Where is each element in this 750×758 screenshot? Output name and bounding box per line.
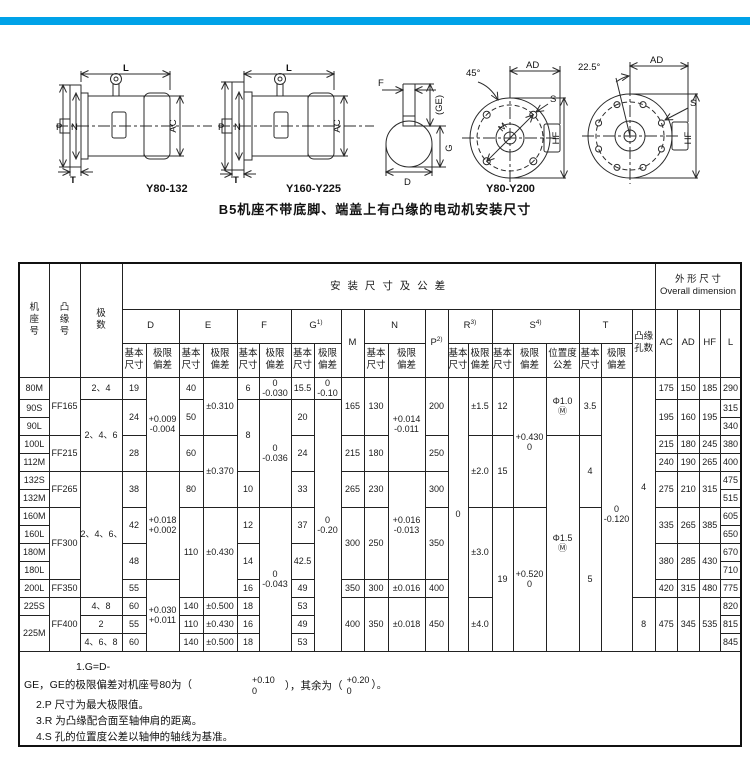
data-cell: 4 [579, 435, 601, 507]
dim-label-ad: AD [526, 60, 539, 71]
notes-cell: 1.G=D- GE，GE的极限偏差对机座号80为（+0.100），其余为（+0.… [19, 651, 741, 746]
data-cell: 53 [291, 597, 314, 615]
data-cell: 480 [699, 579, 720, 597]
data-cell: 49 [291, 579, 314, 597]
figure-y160-y225-side-view: L P N AC T [218, 62, 376, 189]
data-cell: 670 [720, 543, 741, 561]
data-cell: 215 [655, 435, 677, 453]
note-2-end: ）。 [371, 680, 387, 692]
b5-dimension-table: 机 座 号凸 缘 号极 数安 装 尺 寸 及 公 差外 形 尺 寸 Overal… [18, 262, 742, 747]
data-cell: 650 [720, 525, 741, 543]
data-cell: 315 [699, 471, 720, 507]
data-cell: 0 -0.036 [259, 399, 291, 507]
top-accent-bar [0, 17, 750, 25]
data-cell: 845 [720, 633, 741, 651]
data-cell: 430 [699, 543, 720, 579]
dim-label-f: F [378, 78, 384, 89]
figure-y80-132-side-view: L P N AC T [56, 62, 214, 189]
data-cell: 20 [291, 399, 314, 435]
data-cell: 140 [179, 597, 203, 615]
data-cell: 400 [341, 597, 364, 651]
header-cell: 极限 偏差 [388, 343, 425, 377]
data-cell: ±2.0 [468, 435, 492, 507]
header-cell: D [122, 309, 179, 343]
header-cell: 基本 尺寸 [364, 343, 388, 377]
data-cell: 300 [341, 507, 364, 579]
data-cell: ±0.430 [203, 615, 237, 633]
data-cell: 200L [19, 579, 49, 597]
tolerance-fraction-1: +0.100 [252, 675, 275, 696]
data-cell: Φ1.5 Ⓜ [546, 435, 579, 651]
data-cell: 515 [720, 489, 741, 507]
data-cell: +0.030 +0.011 [146, 579, 179, 651]
data-cell: 275 [655, 471, 677, 507]
header-cell: G1) [291, 309, 341, 343]
data-cell: 200 [425, 377, 448, 435]
header-cell: L [720, 309, 741, 377]
figure-shaft-section: F (GE) G D [374, 64, 460, 193]
data-cell: 60 [122, 633, 146, 651]
data-cell: 180L [19, 561, 49, 579]
data-cell: 340 [720, 417, 741, 435]
data-cell: 4 [632, 377, 655, 597]
data-cell: 42.5 [291, 543, 314, 579]
data-cell: 775 [720, 579, 741, 597]
data-cell: 28 [122, 435, 146, 471]
fraction-top: +0.20 [347, 675, 370, 685]
data-cell: +0.014 -0.011 [388, 377, 425, 471]
dim-label-n: N [234, 122, 241, 133]
data-cell: FF300 [49, 507, 80, 579]
data-cell: 265 [341, 471, 364, 507]
data-cell: 5 [579, 507, 601, 651]
data-cell: 165 [341, 377, 364, 435]
page: { "accent_color": "#00a2e8", "figures": … [0, 0, 750, 758]
data-cell: 110 [179, 615, 203, 633]
data-cell: ±0.500 [203, 597, 237, 615]
figure-front-view-8hole: 22.5° AD S HF [576, 56, 704, 191]
data-cell: 380 [655, 543, 677, 579]
data-cell: 55 [122, 579, 146, 597]
data-cell: 420 [655, 579, 677, 597]
data-cell: 132M [19, 489, 49, 507]
fraction-top: +0.10 [252, 675, 275, 685]
header-cell: 基本 尺寸 [448, 343, 468, 377]
data-cell: 33 [291, 471, 314, 507]
data-cell: 285 [677, 543, 699, 579]
dim-label-225deg: 22.5° [578, 62, 600, 73]
header-cell: P2) [425, 309, 448, 377]
tolerance-fraction-2: +0.200 [347, 675, 370, 696]
table-row: 225SFF4004、860140±0.5001853400350±0.0184… [19, 597, 741, 615]
data-cell: 535 [699, 597, 720, 651]
data-cell: 42 [122, 507, 146, 543]
data-cell: 3.5 [579, 377, 601, 435]
data-cell: ±4.0 [468, 597, 492, 651]
dim-label-l: L [123, 63, 129, 74]
header-cell: 极限 偏差 [146, 343, 179, 377]
header-cell: R3) [448, 309, 492, 343]
notes-row: 1.G=D- GE，GE的极限偏差对机座号80为（+0.100），其余为（+0.… [19, 651, 741, 746]
note-line-5: 4.S 孔的位置度公差以轴伸的轴线为基准。 [36, 730, 736, 746]
data-cell: 300 [364, 579, 388, 597]
header-cell: 极限 偏差 [601, 343, 632, 377]
data-cell: 385 [699, 507, 720, 543]
data-cell: 195 [655, 399, 677, 435]
header-cell: AD [677, 309, 699, 377]
data-cell: 16 [237, 579, 259, 597]
note-2-mid: ），其余为（ [285, 680, 343, 692]
data-cell: 12 [492, 377, 513, 435]
data-cell: 60 [122, 597, 146, 615]
header-cell: 极限 偏差 [513, 343, 546, 377]
header-cell: 机 座 号 [19, 263, 49, 377]
data-cell: 12 [237, 507, 259, 543]
dim-label-ac: AC [168, 119, 179, 132]
data-cell: 8 [632, 597, 655, 651]
data-cell: +0.520 0 [513, 507, 546, 651]
header-cell: HF [699, 309, 720, 377]
note-line-2: GE，GE的极限偏差对机座号80为（+0.100），其余为（+0.200）。 [24, 675, 736, 696]
note-line-4: 3.R 为凸缘配合面至轴伸肩的距离。 [36, 714, 736, 730]
header-cell: 基本 尺寸 [291, 343, 314, 377]
data-cell: 140 [179, 633, 203, 651]
data-cell: 2、4 [80, 377, 122, 399]
data-cell: 0 -0.043 [259, 507, 291, 651]
header-cell: 基本 尺寸 [579, 343, 601, 377]
data-cell: 15 [492, 435, 513, 507]
header-cell: 基本 尺寸 [122, 343, 146, 377]
data-cell: 350 [341, 579, 364, 597]
data-cell: 180 [364, 435, 388, 471]
header-cell: 凸缘 孔数 [632, 309, 655, 377]
header-cell: F [237, 309, 291, 343]
data-cell: 210 [677, 471, 699, 507]
header-row: DEFG1)MNP2)R3)S4)T凸缘 孔数ACADHFL [19, 309, 741, 343]
data-cell: 150 [677, 377, 699, 399]
figure-label-y80-y200: Y80-Y200 [486, 183, 535, 195]
dim-label-45deg: 45° [466, 68, 481, 79]
data-cell: 100L [19, 435, 49, 453]
figure-label-y80-132: Y80-132 [146, 183, 188, 195]
note-2-text: GE，GE的极限偏差对机座号80为（ [24, 680, 192, 692]
data-cell: 820 [720, 597, 741, 615]
data-cell: 400 [425, 579, 448, 597]
figure-label-y160-y225: Y160-Y225 [286, 183, 341, 195]
table-row: 80MFF1652、419+0.009 -0.00440±0.31060 -0.… [19, 377, 741, 399]
data-cell: 450 [425, 597, 448, 651]
data-cell: 160M [19, 507, 49, 525]
data-cell: 300 [425, 471, 448, 507]
dim-label-s: S [550, 94, 556, 105]
header-cell: 极限 偏差 [259, 343, 291, 377]
data-cell: 60 [179, 435, 203, 471]
data-cell: 0 [448, 377, 468, 651]
data-cell: 180M [19, 543, 49, 561]
data-cell: +0.009 -0.004 [146, 377, 179, 471]
data-cell: FF165 [49, 377, 80, 435]
header-cell: 位置度 公差 [546, 343, 579, 377]
data-cell: 80M [19, 377, 49, 399]
data-cell: 90S [19, 399, 49, 417]
header-cell: T [579, 309, 632, 343]
data-cell: Φ1.0 Ⓜ [546, 377, 579, 435]
data-cell: FF215 [49, 435, 80, 471]
data-cell: ±1.5 [468, 377, 492, 435]
data-cell: 18 [237, 597, 259, 615]
header-cell: 极限 偏差 [314, 343, 341, 377]
data-cell: 50 [179, 399, 203, 435]
data-cell: ±0.016 [388, 579, 425, 597]
data-cell: 112M [19, 453, 49, 471]
data-cell: 265 [699, 453, 720, 471]
data-cell: 315 [720, 399, 741, 417]
dim-label-t: T [70, 175, 76, 184]
data-cell: 38 [122, 471, 146, 507]
header-cell: E [179, 309, 237, 343]
data-cell: 130 [364, 377, 388, 435]
header-cell: 外 形 尺 寸 Overall dimension [655, 263, 741, 309]
header-cell: 极 数 [80, 263, 122, 377]
data-cell: 160 [677, 399, 699, 435]
header-cell: M [341, 309, 364, 377]
dim-label-p: P [218, 122, 224, 133]
header-cell: 基本 尺寸 [179, 343, 203, 377]
data-cell: 80 [179, 471, 203, 507]
data-cell: 110 [179, 507, 203, 597]
data-cell: 180 [677, 435, 699, 453]
note-line-3: 2.P 尺寸为最大极限值。 [36, 698, 736, 714]
data-cell: 195 [699, 399, 720, 435]
data-cell: 18 [237, 633, 259, 651]
data-cell: FF350 [49, 579, 80, 597]
data-cell: 345 [677, 597, 699, 651]
header-cell: AC [655, 309, 677, 377]
data-cell: 335 [655, 507, 677, 543]
data-cell: 475 [720, 471, 741, 489]
table-foot: 1.G=D- GE，GE的极限偏差对机座号80为（+0.100），其余为（+0.… [19, 651, 741, 746]
figure-y80-y200-front-view-4hole: M 45° AD S HF [460, 60, 568, 191]
data-cell: +0.430 0 [513, 377, 546, 507]
dim-label-ac: AC [332, 119, 343, 132]
data-cell: 160L [19, 525, 49, 543]
data-cell: 815 [720, 615, 741, 633]
header-cell: S4) [492, 309, 579, 343]
data-cell: 24 [291, 435, 314, 471]
data-cell: ±0.018 [388, 597, 425, 651]
note-line-1: 1.G=D- [24, 660, 736, 676]
data-cell: 475 [655, 597, 677, 651]
data-cell: +0.018 +0.002 [146, 471, 179, 579]
data-cell: 0 -0.20 [314, 399, 341, 651]
data-cell: FF265 [49, 471, 80, 507]
data-cell: 8 [237, 399, 259, 471]
dim-label-d: D [404, 177, 411, 188]
data-cell: 400 [720, 453, 741, 471]
data-cell: 37 [291, 507, 314, 543]
dim-label-g: G [444, 144, 455, 151]
data-cell: 24 [122, 399, 146, 435]
data-cell: 215 [341, 435, 364, 471]
data-cell: 605 [720, 507, 741, 525]
data-cell: 14 [237, 543, 259, 579]
dim-label-l: L [286, 63, 292, 74]
data-cell: 0 -0.030 [259, 377, 291, 399]
data-cell: 15.5 [291, 377, 314, 399]
data-cell: 250 [425, 435, 448, 471]
data-cell: 245 [699, 435, 720, 453]
dim-label-hf: HF [683, 131, 694, 144]
header-cell: N [364, 309, 425, 343]
dim-label-ge: (GE) [434, 95, 445, 115]
data-cell: 240 [655, 453, 677, 471]
data-cell: 0 -0.120 [601, 377, 632, 651]
data-cell: 350 [364, 597, 388, 651]
data-cell: 53 [291, 633, 314, 651]
header-cell: 基本 尺寸 [237, 343, 259, 377]
data-cell: 10 [237, 471, 259, 507]
fraction-bottom: 0 [252, 686, 275, 696]
data-cell: 190 [677, 453, 699, 471]
data-cell: ±0.310 [203, 377, 237, 435]
dim-label-s: S [690, 98, 696, 109]
data-cell: 16 [237, 615, 259, 633]
header-cell: 极限 偏差 [203, 343, 237, 377]
dim-label-ad: AD [650, 56, 663, 66]
data-cell: 225S [19, 597, 49, 615]
header-cell: 极限 偏差 [468, 343, 492, 377]
data-cell: 4、8 [80, 597, 122, 615]
data-cell: 290 [720, 377, 741, 399]
data-cell: 49 [291, 615, 314, 633]
data-cell: 48 [122, 543, 146, 579]
data-cell: 55 [122, 615, 146, 633]
dim-label-hf: HF [551, 131, 562, 144]
data-cell: +0.016 -0.013 [388, 471, 425, 579]
fraction-bottom: 0 [347, 686, 370, 696]
figure-caption: B5机座不带底脚、端盖上有凸缘的电动机安装尺寸 [0, 199, 750, 218]
dim-label-n: N [71, 122, 78, 133]
data-cell: 0 -0.10 [314, 377, 341, 399]
table-head: 机 座 号凸 缘 号极 数安 装 尺 寸 及 公 差外 形 尺 寸 Overal… [19, 263, 741, 377]
header-row: 机 座 号凸 缘 号极 数安 装 尺 寸 及 公 差外 形 尺 寸 Overal… [19, 263, 741, 309]
data-cell: 710 [720, 561, 741, 579]
data-cell: 2 [80, 615, 122, 633]
dim-label-p: P [56, 122, 62, 133]
data-cell: 350 [425, 507, 448, 579]
data-cell: 90L [19, 417, 49, 435]
header-cell: 凸 缘 号 [49, 263, 80, 377]
data-cell: 2、4、6、8 [80, 471, 122, 597]
data-cell: 185 [699, 377, 720, 399]
data-cell: ±0.500 [203, 633, 237, 651]
data-cell: ±0.370 [203, 435, 237, 507]
data-cell: 225M [19, 615, 49, 651]
data-cell: 380 [720, 435, 741, 453]
notes-rest: 2.P 尺寸为最大极限值。 3.R 为凸缘配合面至轴伸肩的距离。 4.S 孔的位… [24, 698, 736, 745]
header-cell: 基本 尺寸 [492, 343, 513, 377]
table-body: 80MFF1652、419+0.009 -0.00440±0.31060 -0.… [19, 377, 741, 651]
data-cell: ±3.0 [468, 507, 492, 597]
data-cell: 230 [364, 471, 388, 507]
data-cell: 40 [179, 377, 203, 399]
header-cell: 安 装 尺 寸 及 公 差 [122, 263, 655, 309]
data-cell: 265 [677, 507, 699, 543]
data-cell: 19 [122, 377, 146, 399]
data-cell: 2、4、6 [80, 399, 122, 471]
dim-label-t: T [233, 175, 239, 184]
data-cell: ±0.430 [203, 507, 237, 597]
data-cell: 6 [237, 377, 259, 399]
data-cell: 175 [655, 377, 677, 399]
data-cell: 315 [677, 579, 699, 597]
data-cell: FF400 [49, 597, 80, 651]
data-cell: 4、6、8 [80, 633, 122, 651]
data-cell: 250 [364, 507, 388, 579]
data-cell: 19 [492, 507, 513, 651]
data-cell: 132S [19, 471, 49, 489]
